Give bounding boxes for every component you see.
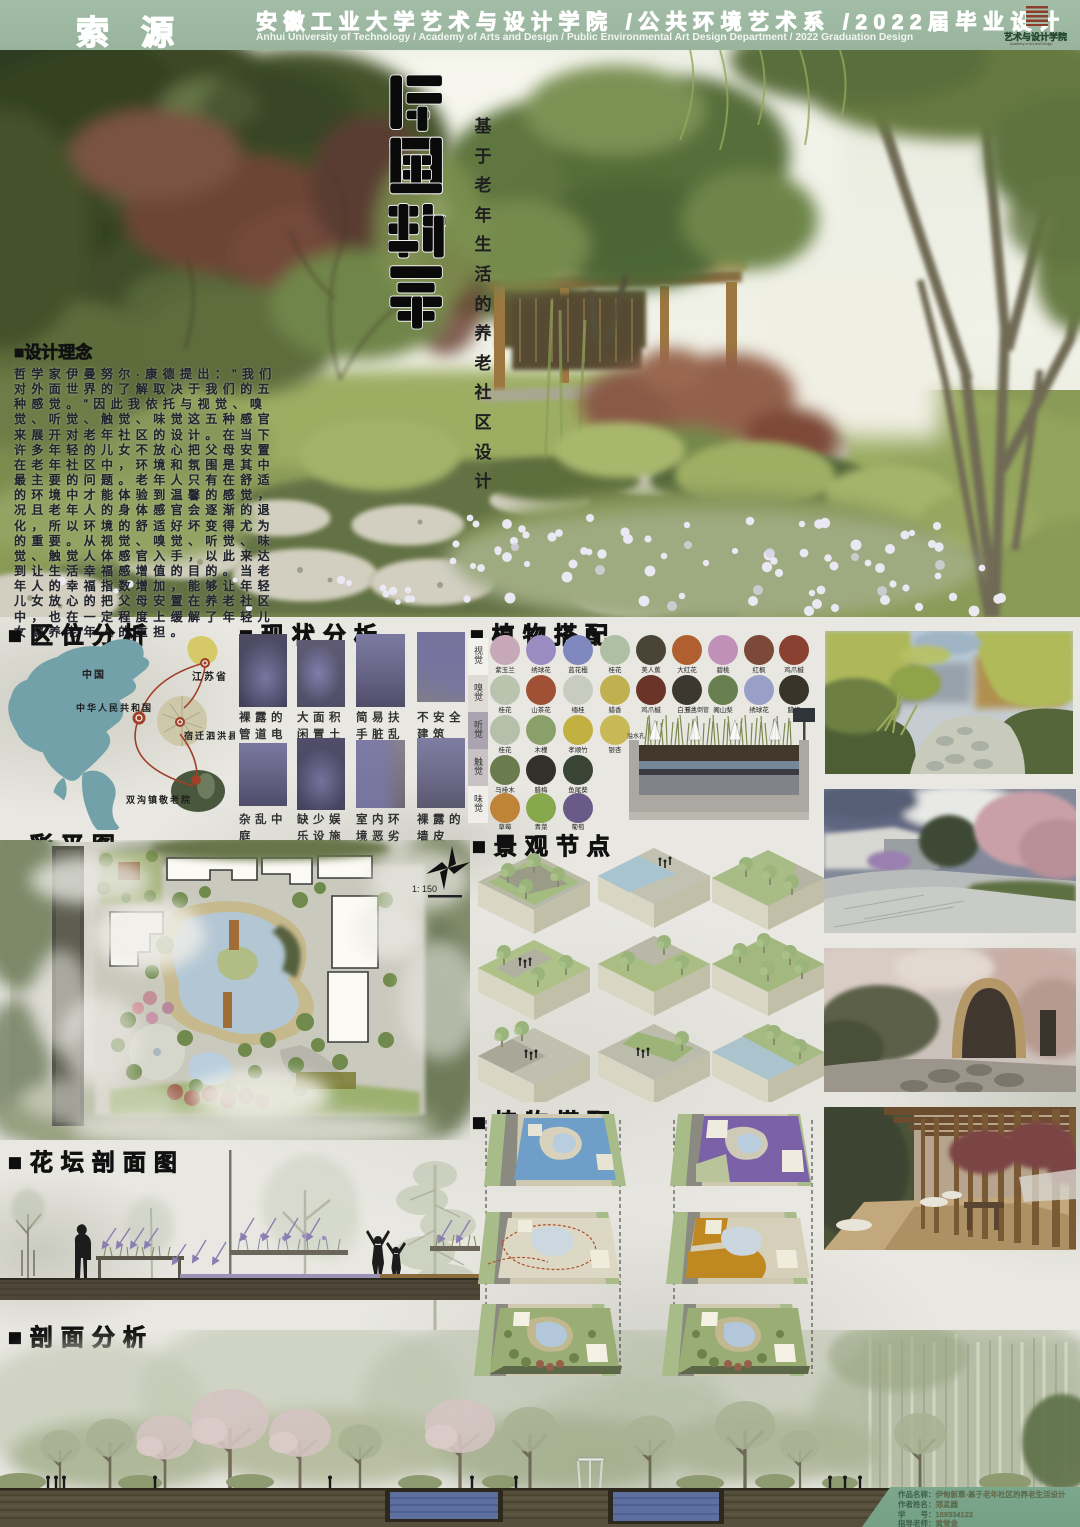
svg-text:桂花: 桂花 xyxy=(499,705,513,714)
svg-text:江苏省: 江苏省 xyxy=(192,670,228,683)
svg-text:马褂木: 马褂木 xyxy=(495,785,515,794)
svg-text:1: 150: 1: 150 xyxy=(412,884,437,894)
svg-text:宿迁泗洪县: 宿迁泗洪县 xyxy=(184,730,235,741)
svg-text:桂花: 桂花 xyxy=(499,745,513,754)
svg-text:排水倒管: 排水倒管 xyxy=(685,706,709,714)
svg-text:美人蕉: 美人蕉 xyxy=(641,665,661,674)
svg-text:溢水孔: 溢水孔 xyxy=(627,732,645,740)
svg-text:中华人民共和国: 中华人民共和国 xyxy=(76,702,153,713)
svg-text:鱼尾葵: 鱼尾葵 xyxy=(568,785,588,794)
svg-text:中国: 中国 xyxy=(82,668,106,681)
svg-text:腊梅: 腊梅 xyxy=(535,785,549,794)
svg-text:木槿: 木槿 xyxy=(535,745,549,754)
svg-text:大红花: 大红花 xyxy=(677,665,697,674)
svg-text:山茶花: 山茶花 xyxy=(531,705,551,714)
svg-text:缅桂: 缅桂 xyxy=(572,705,586,714)
svg-text:鸡爪槭: 鸡爪槭 xyxy=(784,665,804,674)
svg-text:味觉: 味觉 xyxy=(473,793,483,813)
svg-text:银杏: 银杏 xyxy=(609,745,623,754)
svg-text:听觉: 听觉 xyxy=(473,720,483,739)
svg-text:嗅觉: 嗅觉 xyxy=(473,682,483,702)
svg-text:蓝花楹: 蓝花楹 xyxy=(568,665,588,674)
svg-text:碧桃: 碧桃 xyxy=(717,665,731,674)
svg-text:孝顺竹: 孝顺竹 xyxy=(568,745,588,754)
svg-text:红枫: 红枫 xyxy=(753,665,767,674)
svg-text:视觉: 视觉 xyxy=(473,645,483,665)
svg-text:触觉: 触觉 xyxy=(473,756,483,776)
svg-text:桂花: 桂花 xyxy=(609,665,623,674)
svg-text:绣球花: 绣球花 xyxy=(531,665,551,674)
svg-text:双沟镇敬老院: 双沟镇敬老院 xyxy=(126,794,192,805)
svg-text:紫玉兰: 紫玉兰 xyxy=(495,665,515,674)
svg-text:蜡香: 蜡香 xyxy=(609,705,623,714)
